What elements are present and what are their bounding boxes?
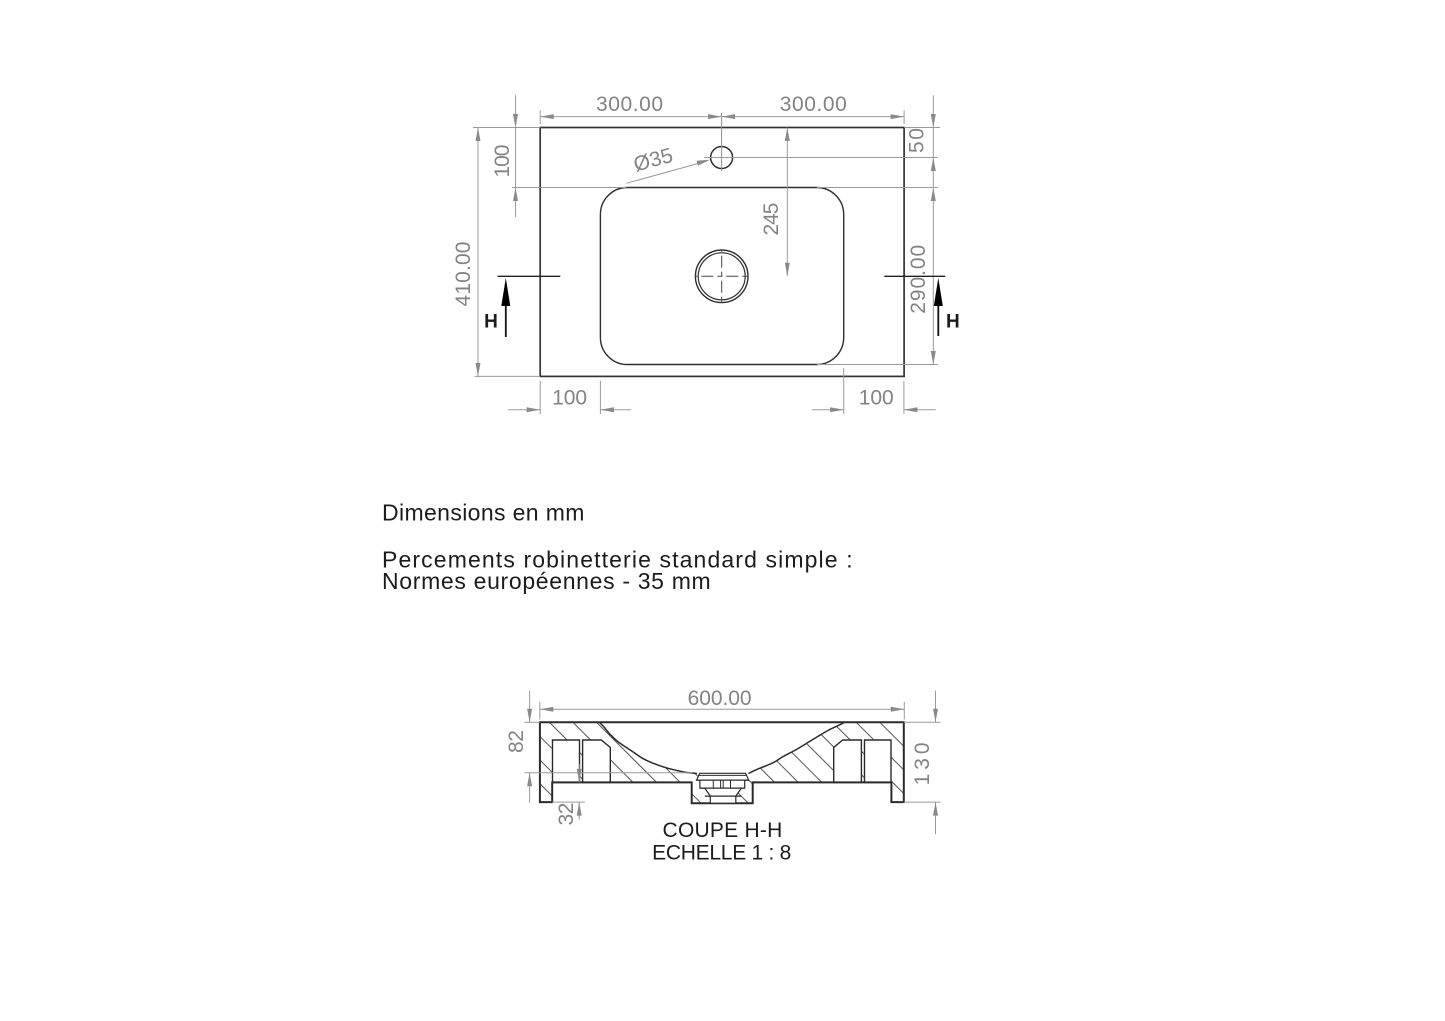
- svg-text:COUPE H-H: COUPE H-H: [663, 819, 783, 842]
- svg-text:Normes européennes - 35 mm: Normes européennes - 35 mm: [382, 568, 711, 594]
- svg-text:300.00: 300.00: [596, 93, 663, 116]
- svg-text:Dimensions en mm: Dimensions en mm: [382, 499, 584, 525]
- svg-text:290.00: 290.00: [907, 245, 930, 314]
- svg-text:50: 50: [906, 128, 929, 153]
- svg-text:100: 100: [491, 145, 514, 178]
- svg-text:H: H: [946, 312, 960, 333]
- svg-text:300.00: 300.00: [780, 93, 847, 116]
- svg-text:410.00: 410.00: [452, 242, 475, 307]
- svg-text:H: H: [484, 312, 498, 333]
- svg-text:600.00: 600.00: [688, 687, 752, 710]
- svg-text:245: 245: [760, 203, 783, 236]
- svg-text:100: 100: [859, 387, 894, 410]
- svg-text:ECHELLE 1 : 8: ECHELLE 1 : 8: [652, 841, 791, 864]
- svg-text:82: 82: [505, 730, 528, 753]
- svg-text:32: 32: [555, 803, 578, 826]
- svg-text:130: 130: [911, 742, 934, 785]
- svg-text:100: 100: [552, 387, 587, 410]
